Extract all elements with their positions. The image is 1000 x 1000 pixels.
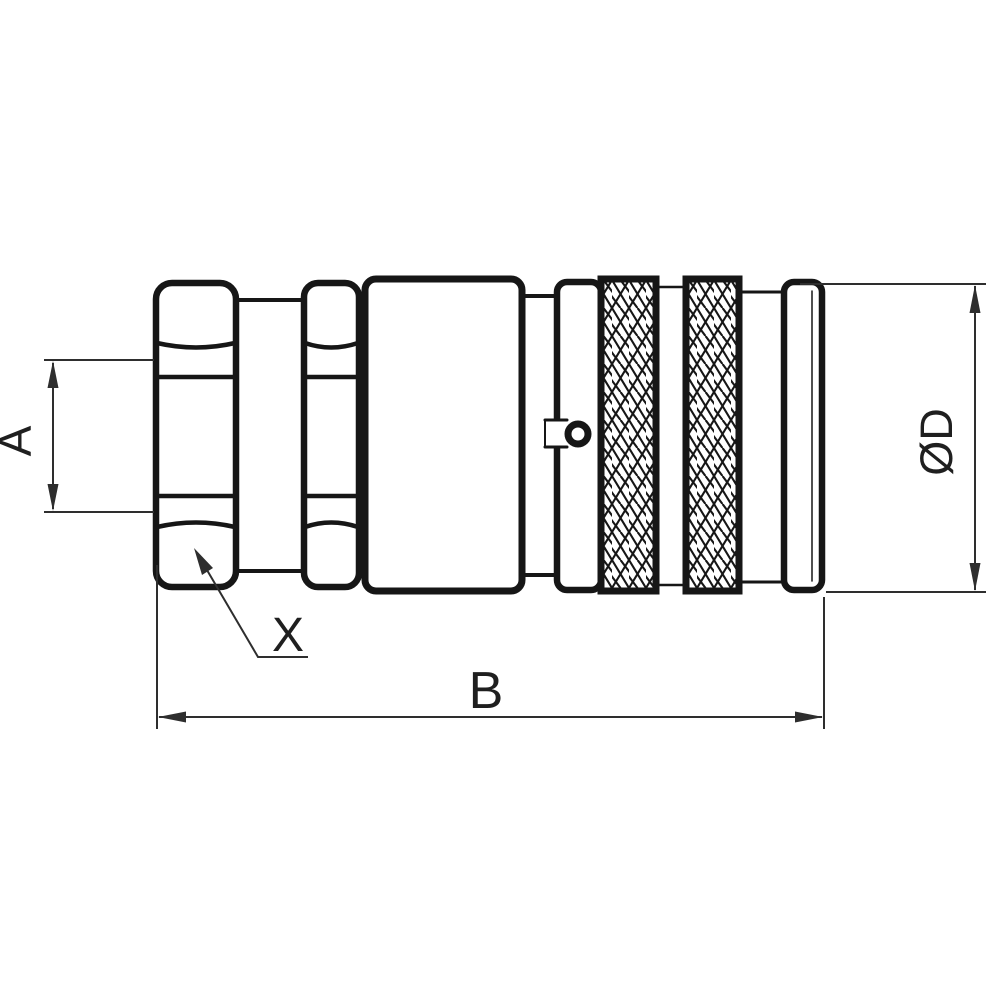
callout-x-label: X bbox=[272, 609, 304, 662]
dimension-d-group: ØD bbox=[800, 284, 986, 592]
knurled-band-rear bbox=[686, 279, 739, 591]
dim-a-label: A bbox=[0, 425, 41, 456]
dim-b-arrow-left-icon bbox=[158, 712, 186, 723]
dim-b-arrow-right-icon bbox=[795, 712, 823, 723]
dim-d-arrow-up-icon bbox=[970, 285, 981, 313]
dimension-a-group: A bbox=[0, 360, 154, 512]
rear-hex-nut bbox=[304, 283, 359, 587]
knurled-band-front bbox=[601, 279, 656, 591]
main-body-barrel bbox=[365, 279, 522, 591]
detent-ball bbox=[568, 424, 588, 444]
coupling-body-group bbox=[156, 279, 822, 591]
detent-slot-opening bbox=[550, 419, 564, 448]
dim-d-label: ØD bbox=[911, 408, 962, 476]
dim-a-arrow-down-icon bbox=[48, 484, 59, 511]
coupling-technical-drawing: A B ØD X bbox=[0, 0, 1000, 1000]
dim-d-arrow-down-icon bbox=[970, 563, 981, 591]
dim-b-label: B bbox=[469, 662, 504, 720]
drawing-canvas: A B ØD X bbox=[0, 0, 1000, 1000]
dim-a-arrow-up-icon bbox=[48, 361, 59, 388]
end-face-cap bbox=[784, 282, 822, 590]
front-hex-nut bbox=[156, 283, 236, 587]
